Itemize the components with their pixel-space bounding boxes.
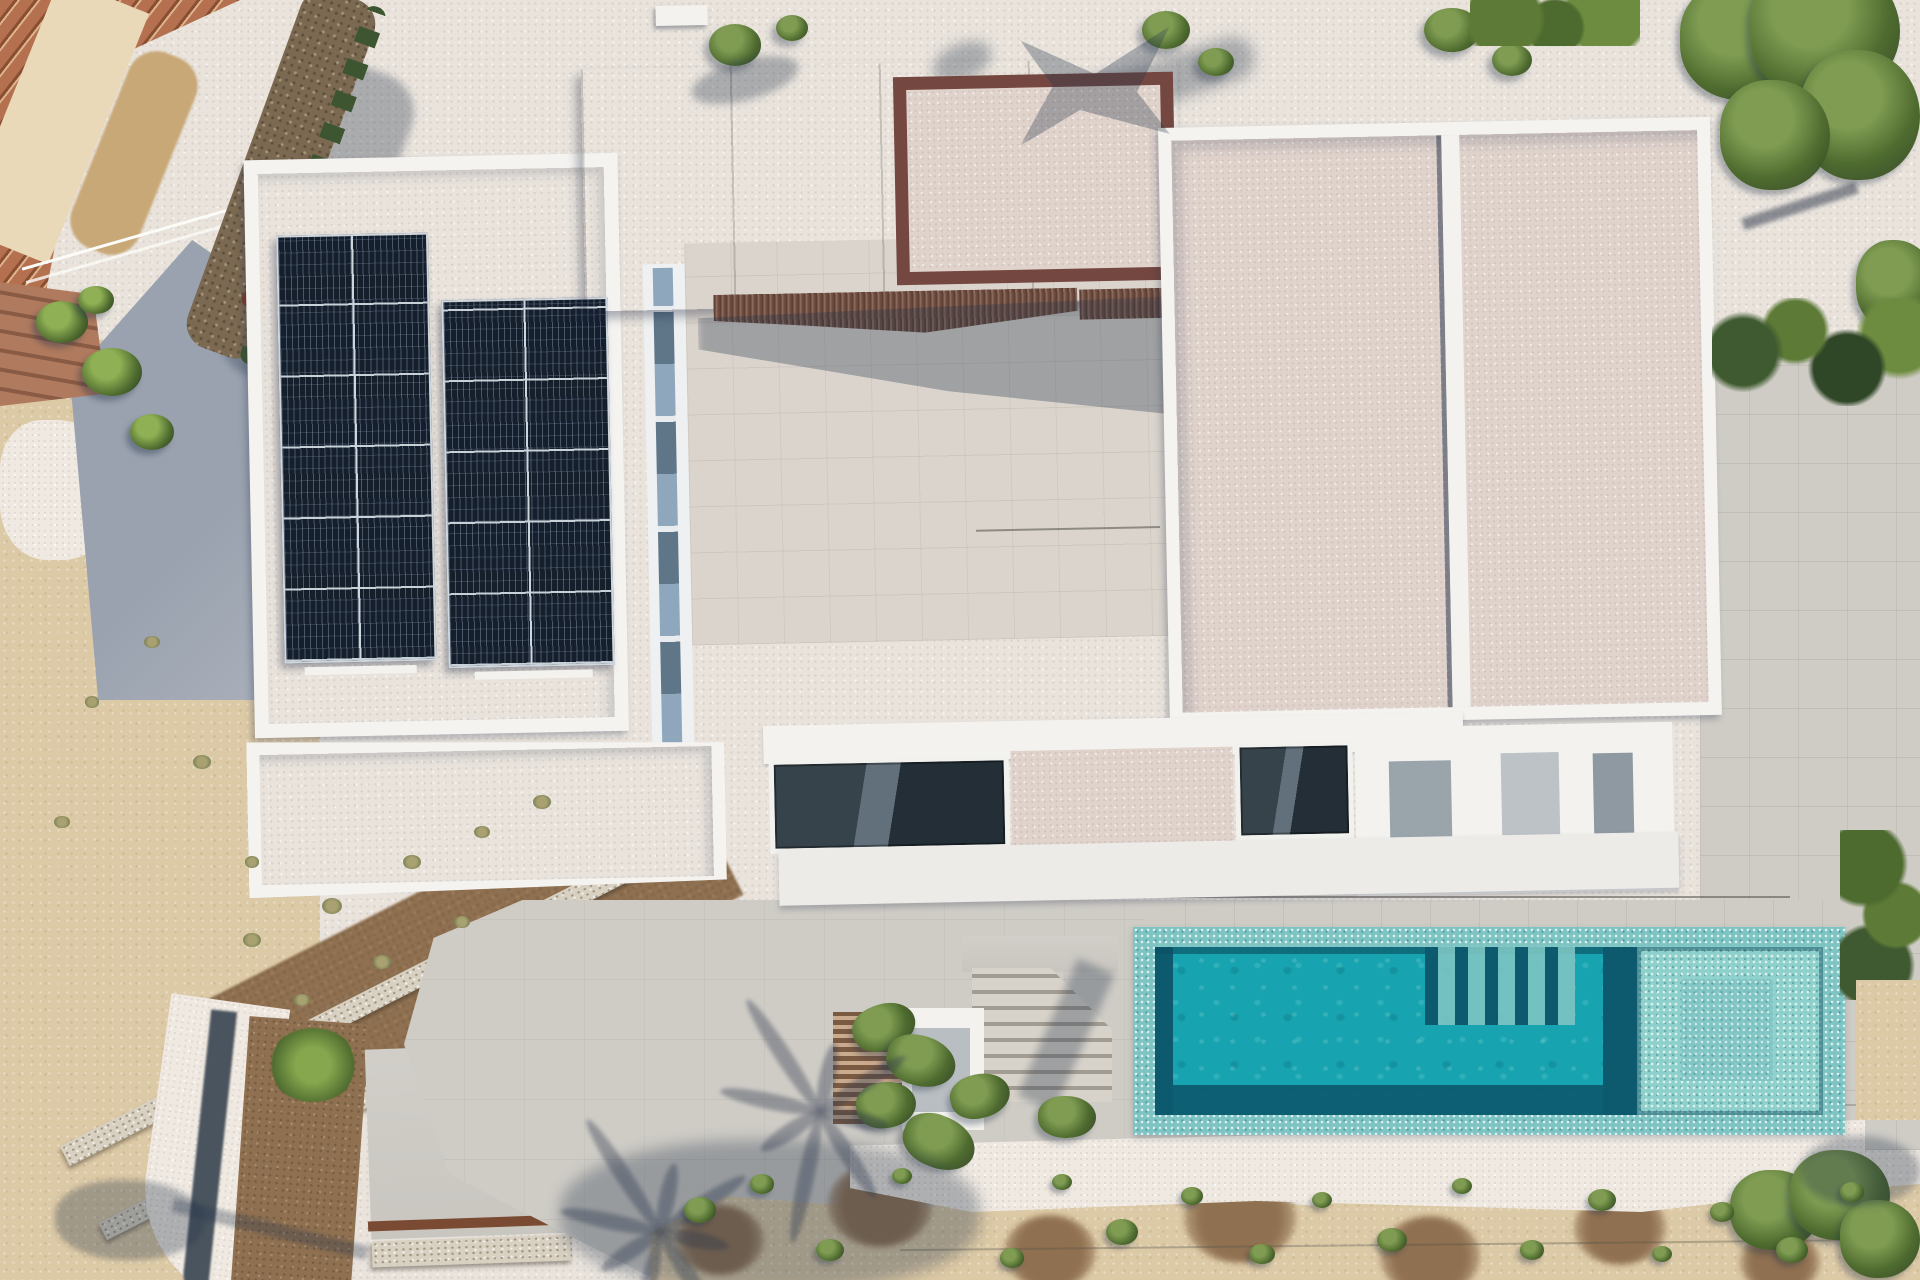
tree-foliage	[1720, 80, 1830, 190]
vegetation-blob	[1181, 1187, 1203, 1205]
vegetation-blob	[1198, 48, 1234, 77]
tree-trunk-shadow	[1741, 182, 1859, 230]
vegetation-blob	[1312, 1192, 1332, 1208]
right-edge-greens	[1840, 830, 1920, 1000]
vegetation-blob	[193, 755, 211, 769]
vegetation-blob	[684, 1197, 716, 1223]
tree-foliage	[1840, 1200, 1920, 1278]
vegetation-blob	[1520, 1240, 1544, 1259]
vegetation-blob	[1052, 1174, 1072, 1190]
shrub-by-stairs	[1038, 1096, 1096, 1138]
vegetation-blob	[1106, 1219, 1138, 1245]
solar-array-east	[441, 297, 614, 668]
vegetation-blob	[1776, 1237, 1808, 1263]
vegetation-blob	[1840, 1182, 1864, 1201]
vegetation-blob	[78, 286, 114, 315]
vegetation-blob	[1452, 1178, 1472, 1194]
dappled-driveway-shadow	[560, 1140, 980, 1280]
vegetation-blob	[403, 855, 421, 869]
rooftop-unit	[655, 5, 707, 26]
vegetation-blob	[85, 696, 99, 707]
vegetation-blob	[1652, 1246, 1672, 1262]
vegetation-blob	[1588, 1189, 1616, 1211]
right-planting-strip	[1712, 298, 1920, 406]
vegetation-blob	[130, 414, 174, 449]
facade-window-west	[769, 755, 1011, 854]
vegetation-blob	[892, 1168, 912, 1184]
vegetation-blob	[1000, 1248, 1024, 1267]
solar-array-west	[276, 233, 437, 664]
vegetation-blob	[533, 795, 551, 809]
vegetation-blob	[1492, 44, 1532, 76]
pool-shelf-platform	[1681, 979, 1773, 1081]
top-right-hedge	[1470, 0, 1640, 46]
pool-channel	[1603, 947, 1637, 1115]
east-roof-parapet	[1158, 117, 1722, 726]
southwest-wing-parapet	[246, 733, 727, 899]
balustrade-joint	[976, 526, 1160, 532]
vegetation-blob	[245, 856, 259, 867]
vegetation-blob	[243, 933, 261, 947]
facade-window-east	[1234, 740, 1354, 840]
pool-deep-edge-bottom	[1155, 1085, 1625, 1115]
banana-leaf	[946, 1067, 1015, 1124]
vegetation-blob	[1710, 1202, 1734, 1221]
pool-lap-steps	[1425, 947, 1575, 1025]
aerial-photo-villa	[0, 0, 1920, 1280]
vegetation-blob	[82, 348, 142, 396]
swimming-pool	[1133, 927, 1845, 1135]
vegetation-blob	[322, 898, 342, 914]
vegetation-blob	[1377, 1228, 1407, 1252]
facade-stone-pier	[1010, 747, 1234, 853]
vegetation-blob	[816, 1239, 844, 1261]
vegetation-blob	[373, 955, 391, 969]
southwest-wing-gravel	[259, 746, 714, 885]
vegetation-blob	[776, 15, 808, 41]
right-edge-dirt	[1856, 980, 1920, 1120]
vegetation-blob	[750, 1174, 774, 1193]
